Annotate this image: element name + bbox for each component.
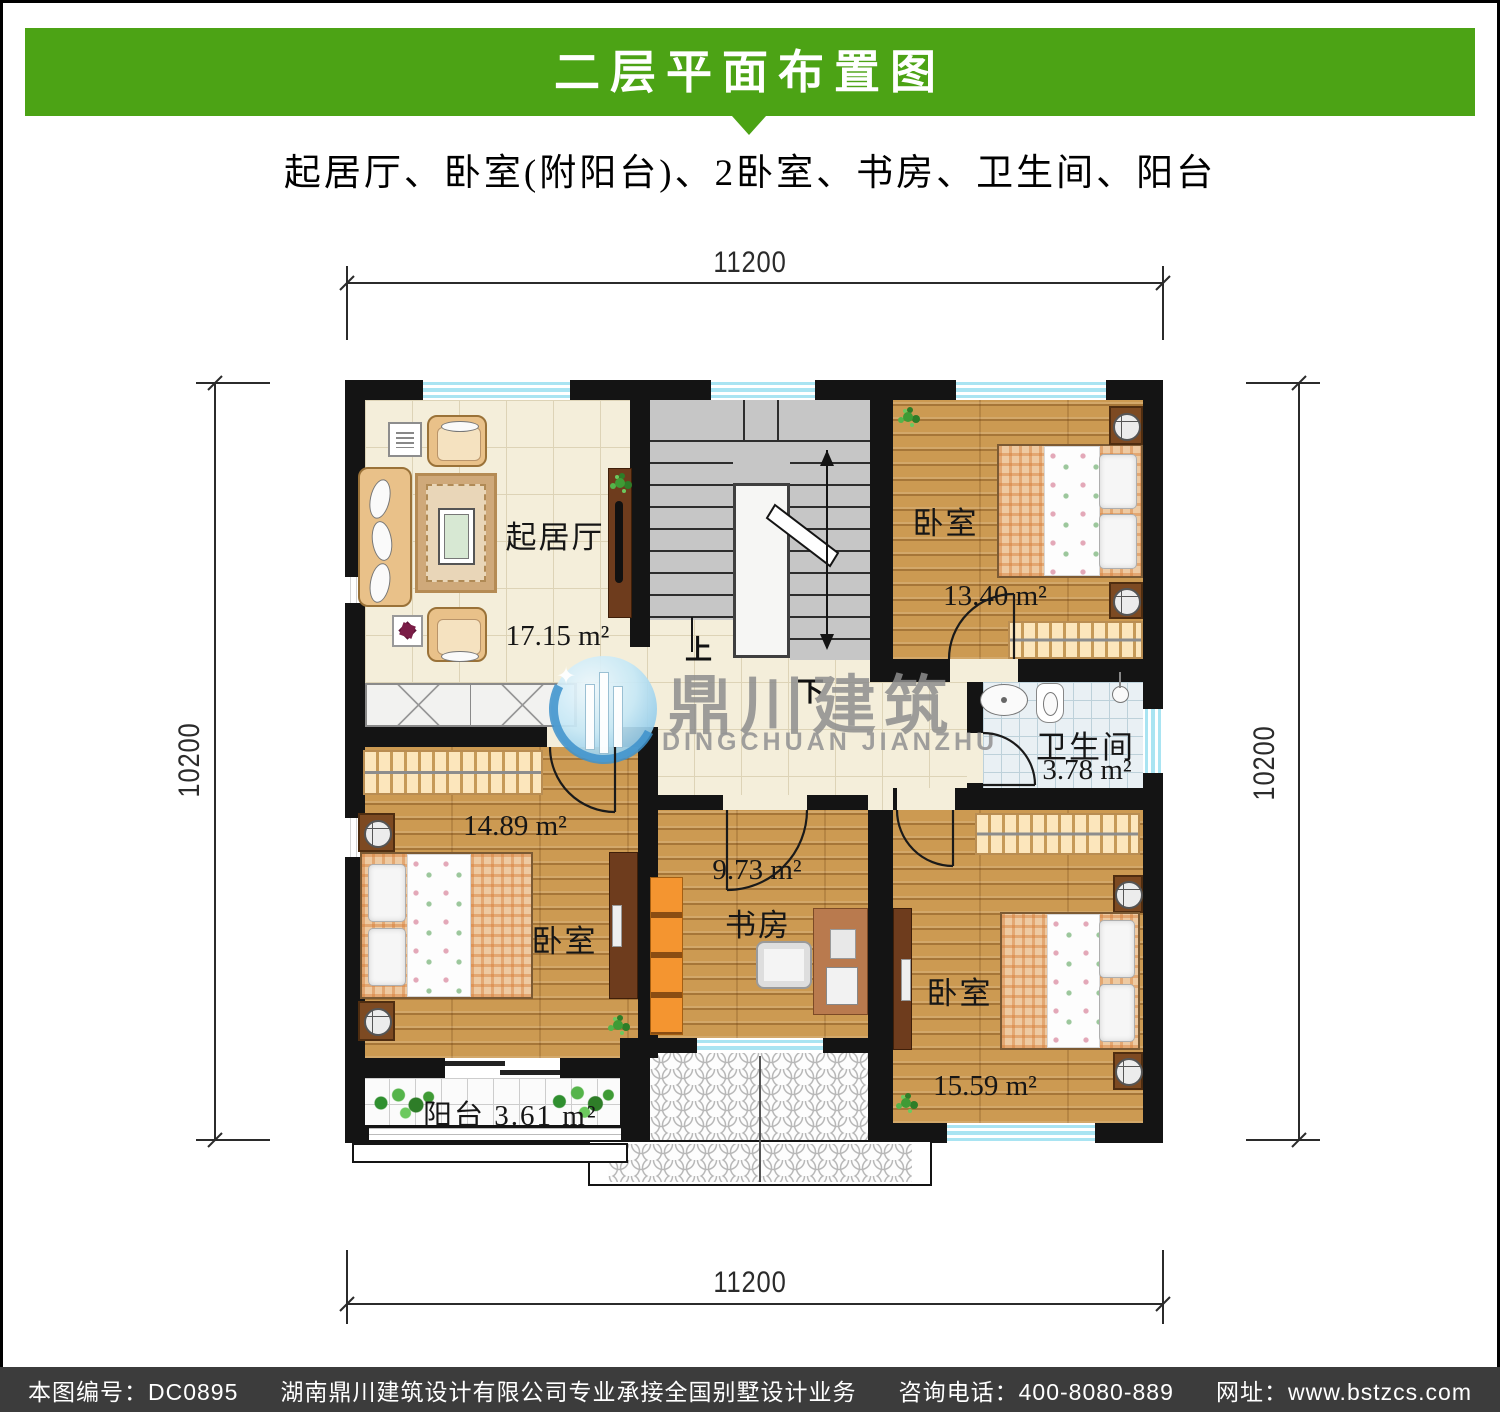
title-banner: 二层平面布置图: [25, 28, 1475, 116]
desk-chair: [756, 941, 812, 989]
footer-website: 网址：www.bstzcs.com: [1216, 1373, 1472, 1407]
sofa: [358, 467, 412, 607]
nightstand: [358, 1001, 395, 1041]
cabinet-unit: [388, 422, 422, 457]
bed-pillow: [1099, 920, 1135, 978]
stair-flight-right: [790, 442, 873, 660]
roof-lower-tiles: [608, 1144, 912, 1182]
plant-icon: [613, 1020, 623, 1030]
footer-phone: 咨询电话：400-8080-889: [899, 1373, 1174, 1407]
wardrobe-bedroomTR: [1008, 621, 1143, 659]
lamp-icon: [1113, 413, 1141, 441]
watermark-building-bar: [585, 684, 595, 750]
shower-head: [1112, 686, 1129, 703]
stair-flight-left: [650, 442, 733, 620]
bedroomL-area: 14.89 m²: [450, 810, 580, 843]
sliding-door-balcony: [445, 1058, 560, 1078]
desk-papers: [830, 929, 856, 959]
plant-icon: [901, 1098, 911, 1108]
dim-right-label: 10200: [1248, 712, 1282, 814]
study-label: 书房: [697, 900, 819, 945]
window-stair: [709, 380, 817, 400]
dim-left-label: 10200: [173, 709, 207, 811]
stair-rail-line: [743, 400, 745, 442]
stair-mid: [733, 442, 790, 487]
toilet: [1036, 683, 1064, 723]
storage-cabinets: [365, 683, 577, 727]
nightstand: [1109, 406, 1143, 445]
bedroomTR-label: 卧室: [888, 498, 1003, 543]
bedroomBR-area: 15.59 m²: [925, 1070, 1045, 1103]
desk: [813, 908, 868, 1015]
dim-bottom-label: 11200: [699, 1266, 801, 1300]
footer-drawing-no: 本图编号：DC0895: [28, 1373, 238, 1407]
lamp-icon: [1113, 588, 1141, 616]
sparkle-icon: ✦: [556, 662, 576, 691]
window-bedroomTR: [954, 380, 1108, 400]
living-room-label: 起居厅: [485, 512, 625, 557]
bedroomTR-area: 13.40 m²: [935, 580, 1055, 613]
armchair-pillow: [441, 421, 479, 432]
floor-plan-page: 二层平面布置图 起居厅、卧室(附阳台)、2卧室、书房、卫生间、阳台 11200 …: [0, 0, 1500, 1412]
nightstand: [1113, 875, 1143, 913]
shower-hose: [1119, 672, 1121, 688]
nightstand: [358, 813, 395, 852]
bed-blanket: [999, 446, 1044, 576]
roof-upper: [650, 1053, 868, 1140]
coffee-table: [438, 508, 475, 565]
wall-study-bedroomBR: [868, 810, 893, 1143]
wardrobe-bedroomBR: [975, 813, 1140, 855]
bed-duvet: [407, 854, 471, 997]
armchair-bottom: [427, 607, 487, 662]
bed-pillow: [368, 864, 406, 922]
armchair-cushion: [437, 427, 481, 461]
sink-drain: [1001, 697, 1007, 703]
footer-company: 湖南鼎川建筑设计有限公司专业承接全国别墅设计业务: [281, 1373, 857, 1407]
computer-icon: [826, 967, 858, 1005]
balcony-area: 3.61 m²: [494, 1100, 597, 1132]
window-living: [421, 380, 572, 400]
armchair-pillow: [441, 651, 479, 662]
door-opening-bedroomTR: [950, 659, 1018, 682]
page-subtitle: 起居厅、卧室(附阳台)、2卧室、书房、卫生间、阳台: [0, 142, 1500, 196]
lamp-icon: [1115, 1058, 1143, 1086]
toilet-bowl: [1043, 692, 1058, 716]
door-opening-study: [723, 795, 807, 810]
armchair-top: [427, 415, 487, 467]
bed-duvet: [1044, 446, 1100, 576]
cabinet-grille: [396, 432, 414, 448]
bed-pillow: [368, 928, 406, 986]
coffee-table-glass: [444, 514, 469, 559]
bathroom-area: 3.78 m²: [1017, 754, 1157, 787]
sofa-pillow: [369, 520, 394, 562]
flower-art-star: [399, 622, 416, 639]
bed-top-right: [997, 444, 1143, 578]
door-opening-bedroomBR: [897, 788, 955, 810]
nightstand: [1113, 1052, 1143, 1090]
page-title: 二层平面布置图: [25, 28, 1475, 116]
bed-pillow: [1099, 454, 1137, 509]
bed-duvet: [1047, 914, 1100, 1048]
footer-bar: 本图编号：DC0895 湖南鼎川建筑设计有限公司专业承接全国别墅设计业务 咨询电…: [0, 1367, 1500, 1412]
balcony-rail-outer: [352, 1143, 628, 1163]
study-area: 9.73 m²: [697, 854, 817, 887]
banner-pointer-triangle: [732, 116, 766, 135]
window-study: [695, 1038, 825, 1053]
armchair-cushion: [437, 619, 481, 655]
lamp-icon: [1115, 881, 1143, 909]
roof-lower: [588, 1140, 932, 1186]
bedroomBR-label: 卧室: [902, 968, 1017, 1013]
sliding-door-leaf: [500, 1070, 560, 1075]
bed-pillow: [1099, 514, 1137, 569]
plant-icon: [615, 478, 625, 488]
sliding-door-leaf: [445, 1061, 505, 1066]
sink: [980, 684, 1028, 716]
stair-top-landing: [650, 400, 873, 442]
bookshelf: [650, 877, 683, 1035]
nightstand: [1109, 582, 1143, 619]
stair-rail-line: [777, 400, 779, 442]
bedroomL-label: 卧室: [507, 916, 622, 961]
sofa-pillow: [367, 562, 394, 605]
balcony-label: 阳台 3.61 m²: [423, 1092, 588, 1134]
stair-center-landing: [733, 483, 790, 658]
watermark-building-bar: [599, 672, 609, 754]
window-bedroomBR: [945, 1123, 1097, 1143]
bed-bottom-right: [1000, 912, 1140, 1050]
watermark-brand-en: DINGCHUAN JIANZHU: [662, 728, 998, 757]
lamp-icon: [364, 1008, 392, 1036]
wardrobe-bedroomL: [363, 750, 543, 795]
cabinet-cell: [367, 685, 471, 725]
flower-art: [392, 615, 423, 647]
plant-icon: [903, 412, 913, 422]
dim-top-label: 11200: [699, 246, 801, 280]
lamp-icon: [364, 820, 392, 848]
balcony-name: 阳台: [423, 1100, 485, 1132]
watermark-building-bar: [613, 686, 623, 748]
sofa-pillow: [366, 477, 394, 520]
living-room-area: 17.15 m²: [485, 620, 630, 653]
bed-pillow: [1099, 984, 1135, 1042]
floor-plan: 起居厅 17.15 m² 卧室 13.40 m² 卫生间 3.78 m²: [345, 380, 1163, 1143]
wall-living-stair: [630, 400, 650, 647]
